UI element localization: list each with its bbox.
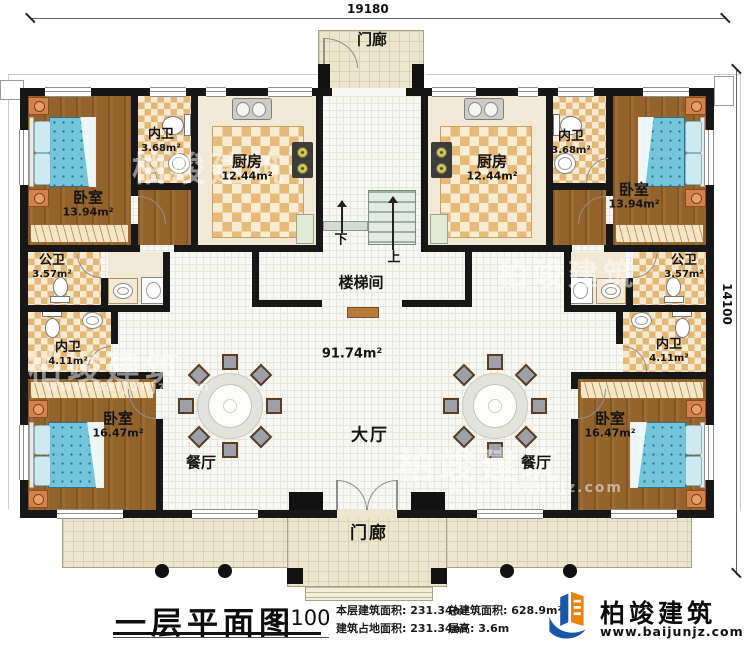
porch-pillar — [431, 568, 447, 584]
eave-line — [8, 74, 9, 510]
scale-label: 1:100 — [270, 606, 331, 630]
wall — [20, 305, 170, 312]
stove-burner — [297, 147, 308, 158]
dining-table-center — [223, 399, 237, 413]
eave-line — [426, 74, 740, 75]
wall — [252, 300, 322, 307]
room-label-bedroom-tr: 卧室13.94m² — [608, 181, 659, 210]
room-label-neiwei-bl: 内卫4.11m² — [48, 341, 87, 367]
door-opening — [337, 510, 397, 518]
dimension-right: 14100 — [720, 283, 734, 325]
room-label-porch-top: 门廊 — [357, 32, 387, 49]
floor-plan: 19180 14100 — [0, 0, 750, 648]
window — [19, 425, 29, 480]
porch-column — [155, 564, 169, 578]
pillow — [685, 153, 702, 185]
pillow — [34, 456, 51, 486]
logo-url: www.baijunjz.com — [600, 624, 744, 639]
doormat — [347, 307, 379, 318]
wall — [111, 312, 118, 344]
room-label-bedroom-bl: 卧室16.47m² — [92, 410, 143, 439]
room-label-porch-bottom: 门廊 — [350, 524, 388, 543]
door-leaf — [336, 480, 338, 510]
dining-table-center — [488, 399, 502, 413]
watermark-text: 柏竣建筑 — [498, 250, 638, 294]
dimension-line-right — [736, 70, 737, 575]
entry-pier — [411, 492, 445, 510]
window — [643, 87, 689, 97]
room-label-kitchen-l: 厨房12.44m² — [221, 153, 272, 182]
window — [206, 87, 226, 97]
wall — [606, 224, 613, 245]
pillow — [34, 425, 51, 455]
room-label-neiwei-br: 内卫4.11m² — [649, 338, 688, 364]
wall — [163, 252, 170, 312]
hall-area-label: 91.74m² — [322, 348, 382, 363]
window — [19, 130, 29, 185]
pillow — [34, 121, 51, 153]
porch-bottom-floor — [287, 510, 447, 587]
entry-steps — [305, 586, 433, 601]
wall — [465, 245, 472, 307]
wall — [402, 300, 472, 307]
porch-pillar — [412, 64, 424, 88]
door-opening — [332, 88, 406, 96]
room-label-gongwei-l: 公卫3.57m² — [32, 254, 71, 280]
room-label-gongwei-r: 公卫3.57m² — [664, 254, 703, 280]
watermark-url: www.baijunjz.com — [448, 480, 623, 496]
eave-line — [740, 74, 741, 510]
room-label-bedroom-br: 卧室16.47m² — [584, 410, 635, 439]
wall — [546, 96, 553, 252]
porch-column — [500, 564, 514, 578]
window — [704, 425, 714, 480]
room-label-dining-l: 餐厅 — [186, 455, 216, 472]
title-underline-thin — [113, 637, 329, 638]
entry-pier — [289, 492, 323, 510]
window — [192, 509, 258, 519]
ac-unit — [714, 76, 734, 106]
room-label-stair-hall: 楼梯间 — [338, 275, 383, 292]
room-label-bedroom-tl: 卧室13.94m² — [62, 189, 113, 218]
wall — [546, 183, 613, 190]
room-label-dining-r: 餐厅 — [521, 455, 551, 472]
wall — [616, 312, 623, 344]
window — [518, 87, 538, 97]
wall — [316, 96, 323, 252]
wall — [156, 419, 163, 510]
room-label-kitchen-r: 厨房12.44m² — [466, 153, 517, 182]
room-label-hall: 大厅 — [351, 426, 389, 445]
wall — [571, 379, 578, 389]
wall — [564, 305, 714, 312]
window — [57, 509, 123, 519]
window — [704, 130, 714, 185]
logo-mark-icon — [544, 588, 598, 644]
stove-burner — [436, 163, 447, 174]
room-label-neiwei-tr: 内卫3.68m² — [551, 130, 590, 156]
wall — [252, 245, 323, 252]
eave-line — [8, 74, 318, 75]
pillow — [685, 121, 702, 153]
window — [268, 87, 312, 97]
title-underline — [113, 632, 321, 635]
porch-column — [218, 564, 232, 578]
window — [611, 509, 677, 519]
watermark-url: www.baijunjz.com — [46, 380, 211, 395]
window — [558, 87, 594, 97]
dimension-top: 19180 — [347, 2, 389, 16]
porch-pillar — [287, 568, 303, 584]
window — [477, 509, 543, 519]
room-label-neiwei-tl: 内卫3.68m² — [141, 128, 180, 154]
stair-down-label: 下 — [334, 234, 347, 249]
window — [150, 87, 186, 97]
dimension-line-top — [30, 18, 726, 19]
window — [45, 87, 91, 97]
wall — [131, 224, 138, 245]
wall — [20, 245, 140, 252]
wall — [252, 245, 259, 307]
wall — [174, 245, 198, 252]
pillow — [685, 425, 702, 455]
stair-up-label: 上 — [387, 252, 400, 267]
wall — [421, 96, 428, 252]
wall — [571, 419, 578, 510]
wall — [571, 372, 714, 379]
stat-floor-height: 层高: 3.6m — [448, 620, 509, 636]
porch-column — [563, 564, 577, 578]
window — [432, 87, 476, 97]
porch-pillar — [318, 64, 330, 88]
stove-burner — [436, 147, 447, 158]
pillow — [34, 153, 51, 185]
pillow — [685, 456, 702, 486]
stove-burner — [297, 163, 308, 174]
